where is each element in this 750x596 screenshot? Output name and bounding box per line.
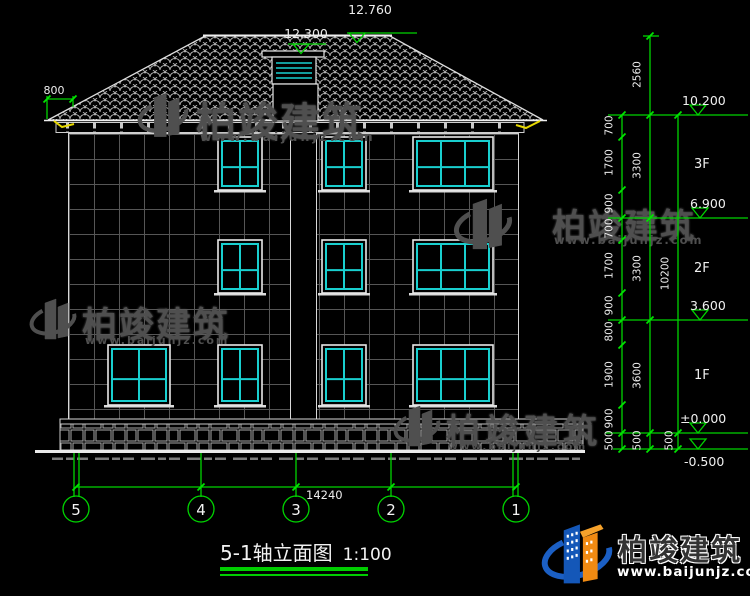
drawing-title: 5-1轴立面图1:100 [220,537,392,566]
elev-f2: 3.600 [690,299,726,313]
drawing-scale: 1:100 [343,545,392,565]
dim-inner-4: 1700 [604,244,617,288]
axis-bubble-1: 1 [503,501,529,519]
elevation-drawing-canvas: 柏竣建筑 www.baijunjz.com 柏竣建筑 www.baijunjz.… [0,0,750,596]
dim-inner-7: 1900 [604,353,617,397]
dim-roof-rise: 2560 [632,53,645,97]
axis-bubble-3: 3 [283,501,309,519]
dim-mid-1: 3300 [632,247,645,291]
elev-eave: 10.200 [682,94,726,108]
elev-ridge: 12.760 [346,3,394,17]
drawing-title-text: 5-1轴立面图 [220,541,333,565]
dimension-ticks [44,33,682,491]
dim-outer-1: 500 [664,419,677,463]
elev-ground: -0.500 [684,455,724,469]
baijun-logo-brand: 柏竣建筑 [618,527,742,569]
floor-label-3f: 3F [694,158,710,172]
axis-bubble-2: 2 [378,501,404,519]
floor-label-1f: 1F [694,369,710,383]
title-underline-thin [220,574,368,576]
dim-inner-9: 500 [604,419,617,463]
dim-mid-2: 3600 [632,354,645,398]
baijun-logo-url: www.baijunjz.com [617,564,750,580]
elev-chimney: 12.300 [282,27,330,41]
dim-mid-0: 3300 [632,144,645,188]
dim-mid-3: 500 [632,419,645,463]
title-underline-thick [220,567,368,571]
dim-inner-6: 800 [604,310,617,354]
elev-f3: 6.900 [690,197,726,211]
baijun-logo-icon [540,520,614,590]
elev-f1: ±0.000 [680,412,726,426]
dim-eave-overhang: 800 [36,85,72,97]
dim-total-width: 14240 [306,489,343,502]
dim-inner-1: 1700 [604,141,617,185]
floor-label-2f: 2F [694,262,710,276]
dim-outer-0: 10200 [660,252,673,296]
axis-bubble-5: 5 [63,501,89,519]
axis-bubble-4: 4 [188,501,214,519]
